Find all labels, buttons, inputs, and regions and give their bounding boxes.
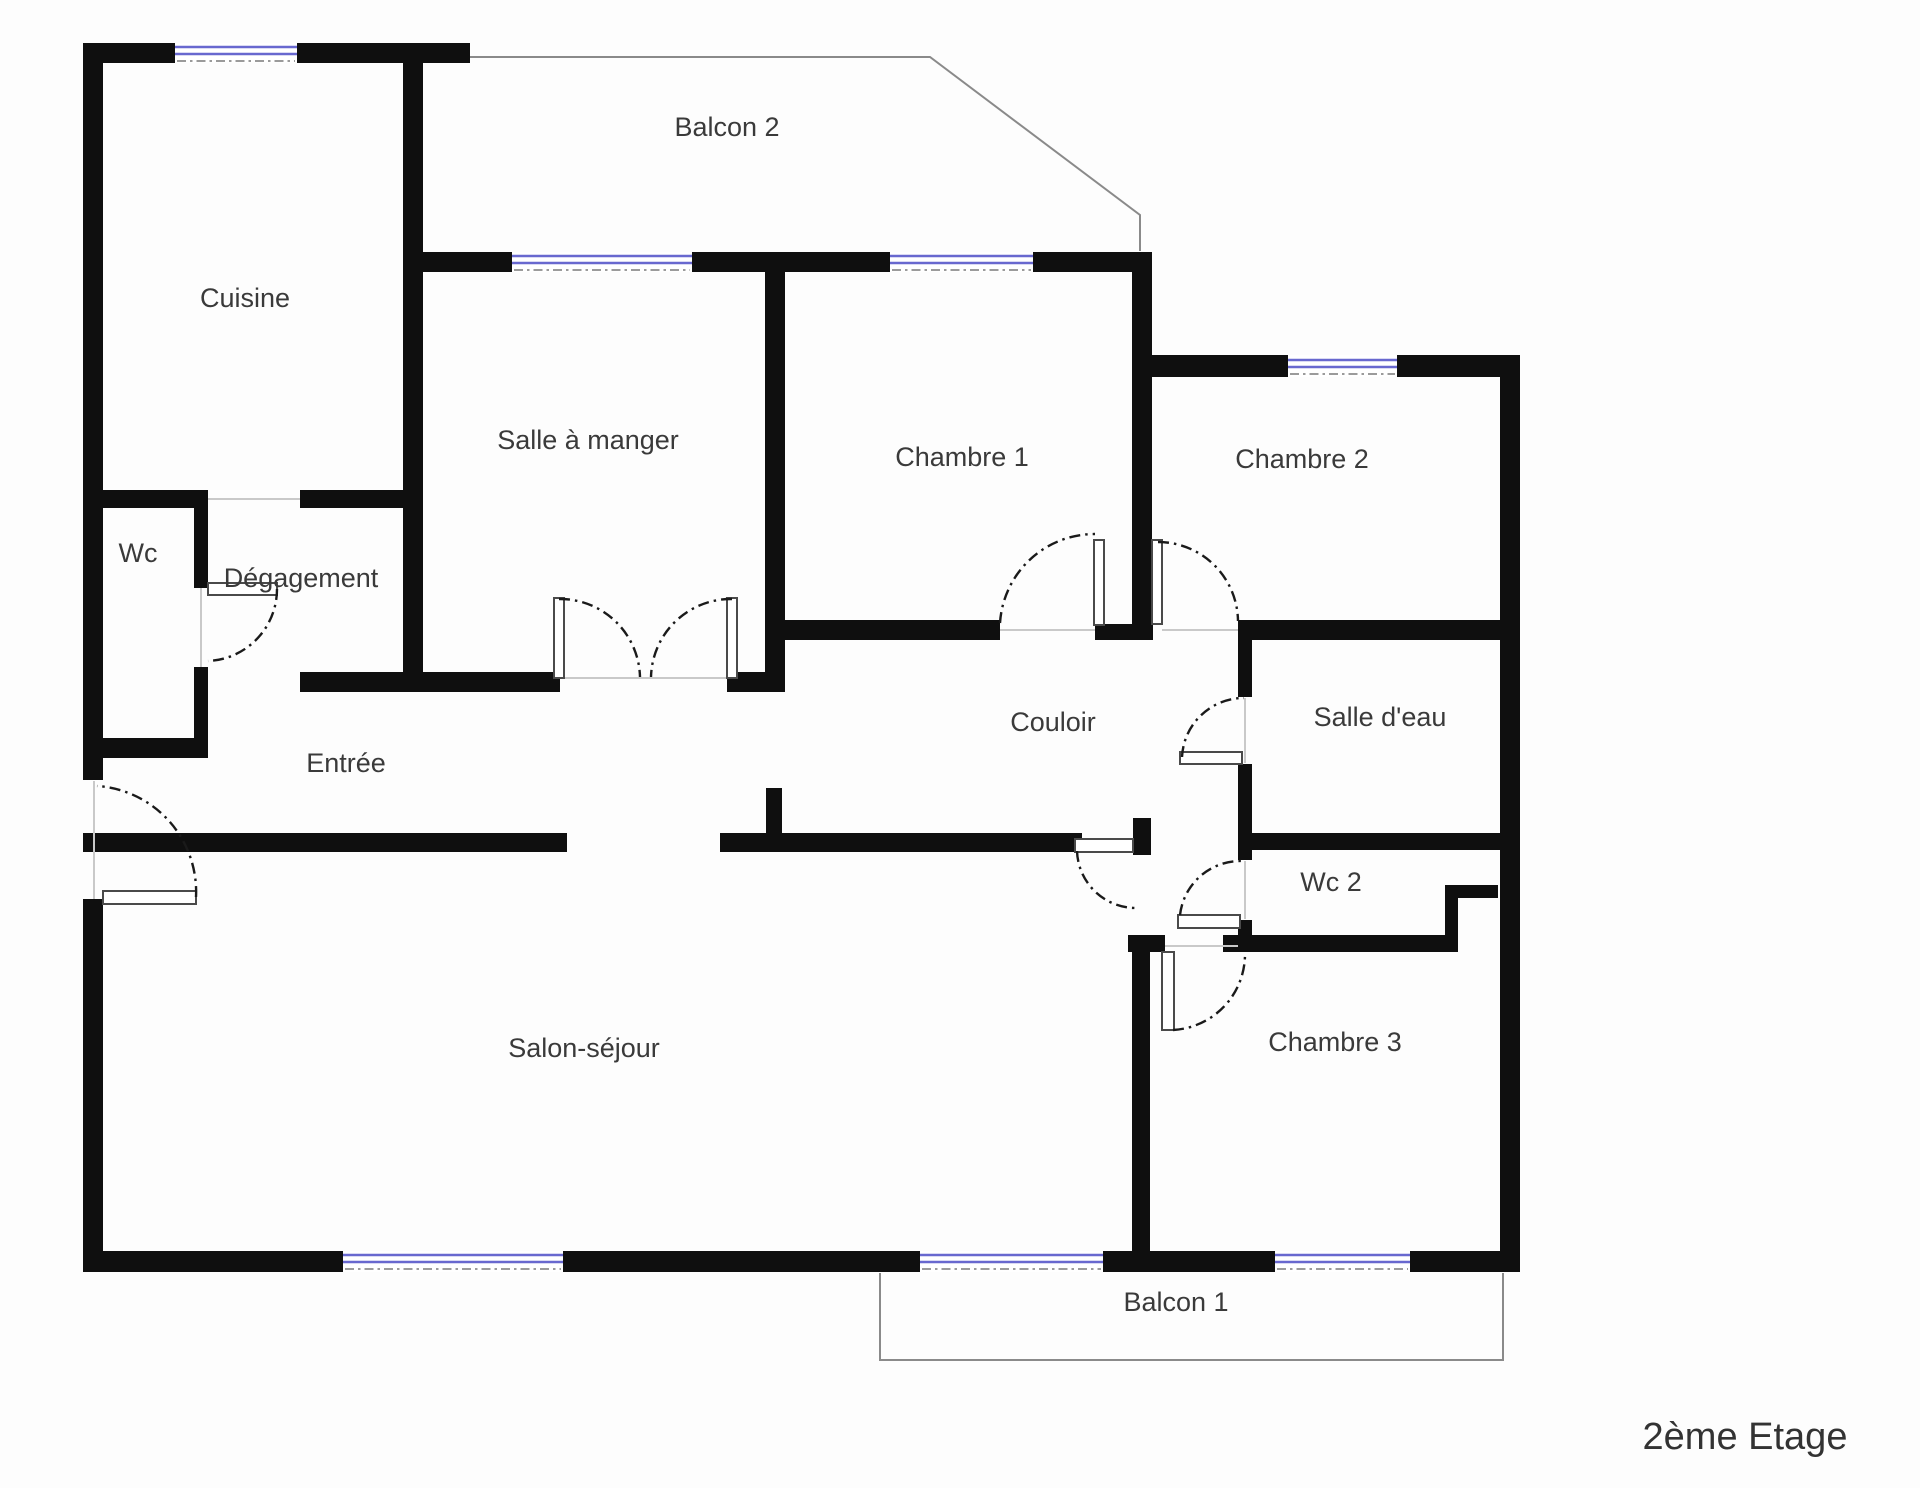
window-salon-right [920, 1251, 1103, 1272]
floorplan-page: Cuisine Salle à manger Chambre 1 Chambre… [0, 0, 1920, 1488]
room-label-wc2: Wc 2 [1300, 867, 1362, 897]
room-label-chambre1: Chambre 1 [895, 442, 1029, 472]
room-label-cuisine: Cuisine [200, 283, 290, 313]
window-chambre2 [1288, 355, 1397, 377]
balcon2-outline [470, 57, 1140, 251]
room-label-degagement: Dégagement [224, 563, 379, 593]
chambre1-door-leaf [1094, 540, 1104, 625]
room-label-wc: Wc [119, 538, 158, 568]
windows-layer [175, 43, 1410, 1272]
room-label-salle-eau: Salle d'eau [1314, 702, 1447, 732]
floorplan-canvas: Cuisine Salle à manger Chambre 1 Chambre… [0, 0, 1920, 1488]
room-label-couloir: Couloir [1010, 707, 1096, 737]
balcony-label-balcon1: Balcon 1 [1123, 1287, 1228, 1317]
couloir-door-leaf [1075, 839, 1133, 852]
window-chambre1 [890, 252, 1033, 272]
double-door-right-leaf [727, 598, 737, 678]
window-chambre3 [1275, 1251, 1410, 1272]
window-salle-a-manger [512, 252, 692, 272]
window-cuisine [175, 43, 297, 63]
room-label-chambre3: Chambre 3 [1268, 1027, 1402, 1057]
room-label-chambre2: Chambre 2 [1235, 444, 1369, 474]
chambre3-door-leaf [1162, 952, 1174, 1030]
balcony-label-balcon2: Balcon 2 [674, 112, 779, 142]
room-label-salle-a-manger: Salle à manger [497, 425, 679, 455]
double-door-left-leaf [554, 598, 564, 678]
room-label-entree: Entrée [306, 748, 386, 778]
room-label-salon-sejour: Salon-séjour [508, 1033, 660, 1063]
floor-title: 2ème Etage [1643, 1416, 1848, 1458]
wc2-door-leaf [1178, 915, 1240, 928]
window-salon-left [343, 1251, 563, 1272]
door-arcs-layer [97, 534, 1245, 1030]
chambre2-door-leaf [1152, 540, 1162, 624]
entry-door-leaf [103, 891, 196, 904]
walls-layer [83, 43, 1520, 1272]
salle-eau-door-leaf [1180, 752, 1242, 764]
